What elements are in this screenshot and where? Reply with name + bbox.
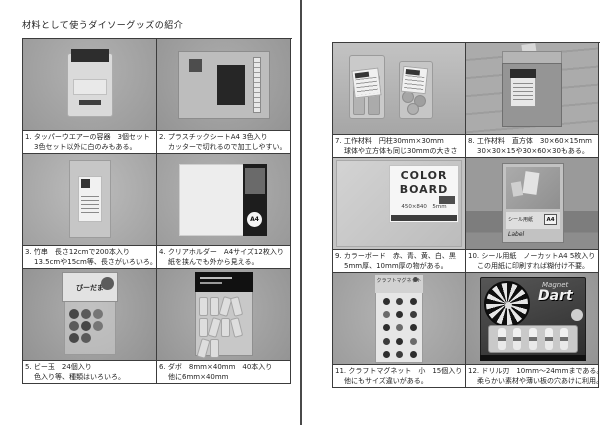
item1-photo-tupperware [23,39,156,130]
caption-line2: 他にもサイズ違いがある。 [335,376,463,386]
dart-piece [498,328,506,350]
dart-piece [513,328,521,350]
dowel-cluster [199,297,251,353]
photo-cell-1 [23,39,157,131]
caption-line1: 11. クラフトマグネット 小 15個入り [335,366,463,376]
label-brand-text: Label [508,231,548,238]
magnet [396,351,403,358]
container-top-label [71,49,109,62]
dowel [210,297,219,316]
caption-item-4: 4. クリアホルダー A4サイズ12枚入り 紙を挟んでも外から見える。 [157,246,291,269]
a4-badge: A4 [544,214,557,225]
magnet [410,338,417,345]
skewer-label-mark [81,179,90,188]
color-board-title-line2: BOARD [391,183,457,196]
caption-item-6: 6. ダボ 8mm×40mm 40本入り 他に6mm×40mm [157,361,291,384]
caption-item-3: 3. 竹串 長さ12cmで200本入り 13.5cmや15cm等、長さがいろいろ… [23,246,157,269]
marble [81,333,91,343]
marble-mascot-icon [101,277,114,290]
magnet [383,351,390,358]
magnet [383,324,390,331]
dowel [230,296,243,317]
photo-cell-8 [466,43,599,135]
caption-line1: 4. クリアホルダー A4サイズ12枚入り [159,247,288,257]
caption-line1: 1. タッパーウエアーの容器 3個セット [25,132,154,142]
photo-cell-4: A4 [157,154,291,246]
marble [93,321,103,331]
dowel-header-text-line [200,277,232,279]
dowel [230,317,243,338]
photo-cell-11: クラフトマグネット [333,273,466,365]
dart-piece [560,328,568,350]
magnet [396,311,403,318]
dowel [210,339,219,358]
photo-cell-2 [157,39,291,131]
marble [93,309,103,319]
photo-cell-9: COLOR BOARD 450×840 5mm [333,158,466,250]
photo-cell-12: Magnet Dart [466,273,599,365]
caption-line1: 9. カラーボード 赤、青、黄、白、黒 [335,251,463,261]
item12-photo-magnet-dart: Magnet Dart [466,273,598,364]
caption-item-10: 10. シール用紙 ノーカットA4 5枚入り この用紙に印刷すれば糊付け不要。 [466,250,599,273]
caption-line2: 30×30×15や30×60×30もある。 [468,146,596,156]
magnet-grid [382,297,418,359]
caption-item-11: 11. クラフトマグネット 小 15個入り 他にもサイズ違いがある。 [333,365,466,388]
caption-line1: 6. ダボ 8mm×40mm 40本入り [159,362,288,372]
container-barcode [79,100,101,105]
photo-cell-6 [157,269,291,361]
sheet-dark-label [217,65,245,105]
marble [81,309,91,319]
a4-badge: A4 [247,212,262,227]
dowel [208,317,222,338]
dart-blister-tray [488,325,578,353]
caption-item-8: 8. 工作材料 直方体 30×60×15mm 30×30×15や30×60×30… [466,135,599,158]
sheet-corner-label [189,59,202,72]
caption-item-1: 1. タッパーウエアーの容器 3個セット 3色セット以外に白のみもある。 [23,131,157,154]
magnet [383,298,390,305]
block-label-header [510,69,536,78]
dowel [199,318,208,337]
item3-photo-bamboo-skewers [23,154,156,245]
item9-photo-color-board: COLOR BOARD 450×840 5mm [333,158,465,249]
left-catalog-table: 1. タッパーウエアーの容器 3個セット 3色セット以外に白のみもある。 2. … [22,38,292,384]
left-page: 材料として使うダイソーグッズの紹介 1. タッパーウエアーの容器 3個セット 3… [22,18,292,384]
marble [69,333,79,343]
dowel-header-text-line [200,282,222,284]
marble [69,309,79,319]
caption-line2: カッターで切れるので加工しやすい。 [159,142,288,152]
dart-brand-word2: Dart [538,288,573,304]
dowel [221,318,230,337]
tag-text-lines [404,75,424,91]
caption-item-5: 5. ビー玉 24個入り 色入り等、種類はいろいろ。 [23,361,157,384]
caption-line2: 3色セット以外に白のみもある。 [25,142,154,152]
block-label-text-lines [513,83,533,101]
bag-tag [401,66,429,94]
caption-line2: 紙を挟んでも外から見える。 [159,257,288,267]
dart-piece [529,328,537,350]
dowel [199,297,208,316]
item8-photo-wood-blocks [466,43,598,134]
magnet [383,338,390,345]
magnet [383,311,390,318]
caption-line2: 13.5cmや15cm等、長さがいろいろ。 [25,257,154,267]
magnet [396,298,403,305]
item2-photo-plastic-sheet [157,39,290,130]
skewer-label-lines [81,196,99,216]
magnet [410,311,417,318]
page-divider-line [300,0,302,425]
caption-line2: この用紙に印刷すれば糊付け不要。 [468,261,596,271]
bullseye-icon [505,302,512,309]
holder-band-picture [245,168,265,194]
right-catalog-table: 7. 工作材料 円柱30mm×30mm 球体や立方体も同じ30mmの大きさ 8.… [332,42,600,388]
caption-line2: 他に6mm×40mm [159,372,288,382]
item6-photo-dowels [157,269,290,360]
sheet-ruler-strip [253,57,261,113]
marble-cluster [69,309,113,353]
caption-line1: 7. 工作材料 円柱30mm×30mm [335,136,463,146]
color-board-small-tag [439,196,455,204]
right-page: 7. 工作材料 円柱30mm×30mm 球体や立方体も同じ30mmの大きさ 8.… [332,42,600,388]
magnet [410,324,417,331]
dart-bottom-strip [480,355,586,361]
magnet [396,324,403,331]
dart-piece [545,328,553,350]
dart-round-badge [571,309,583,321]
color-board-title-line1: COLOR [391,169,457,182]
caption-item-9: 9. カラーボード 赤、青、黄、白、黒 5mm厚、10mm厚の物がある。 [333,250,466,273]
tag-text-lines [355,77,378,95]
photo-cell-7 [333,43,466,135]
caption-line1: 3. 竹串 長さ12cmで200本入り [25,247,154,257]
item11-photo-craft-magnets: クラフトマグネット [333,273,465,364]
caption-line1: 10. シール用紙 ノーカットA4 5枚入り [468,251,596,261]
page-title: 材料として使うダイソーグッズの紹介 [22,18,292,31]
container-mid-label [73,79,107,95]
color-board-dark-strip [391,215,457,221]
wood-sphere [407,103,419,115]
caption-line1: 8. 工作材料 直方体 30×60×15mm [468,136,596,146]
caption-item-12: 12. ドリル刃 10mm～24mmまである。 柔らかい素材や薄い板の穴あけに利… [466,365,599,388]
magnet [410,351,417,358]
magnet [396,338,403,345]
hang-hole-icon [413,277,418,282]
item5-photo-marbles: びーだま [23,269,156,360]
caption-line2: 球体や立方体も同じ30mmの大きさ [335,146,463,156]
bag-tag [351,67,381,98]
marble [81,321,91,331]
caption-line1: 2. プラスチックシートA4 3色入り [159,132,288,142]
caption-line2: 色入り等、種類はいろいろ。 [25,372,154,382]
caption-item-7: 7. 工作材料 円柱30mm×30mm 球体や立方体も同じ30mmの大きさ [333,135,466,158]
caption-line1: 12. ドリル刃 10mm～24mmまである。 [468,366,596,376]
item7-photo-wood-cylinders [333,43,465,134]
caption-line2: 柔らかい素材や薄い板の穴あけに利用。 [468,376,596,386]
item10-photo-seal-paper: シール用紙 A4 Label [466,158,598,249]
caption-line2: 5mm厚、10mm厚の物がある。 [335,261,463,271]
caption-item-2: 2. プラスチックシートA4 3色入り カッターで切れるので加工しやすい。 [157,131,291,154]
photo-cell-3 [23,154,157,246]
item4-photo-clear-holder: A4 [157,154,290,245]
marble [69,321,79,331]
photo-cell-10: シール用紙 A4 Label [466,158,599,250]
photo-cell-5: びーだま [23,269,157,361]
magnet [410,298,417,305]
caption-line1: 5. ビー玉 24個入り [25,362,154,372]
